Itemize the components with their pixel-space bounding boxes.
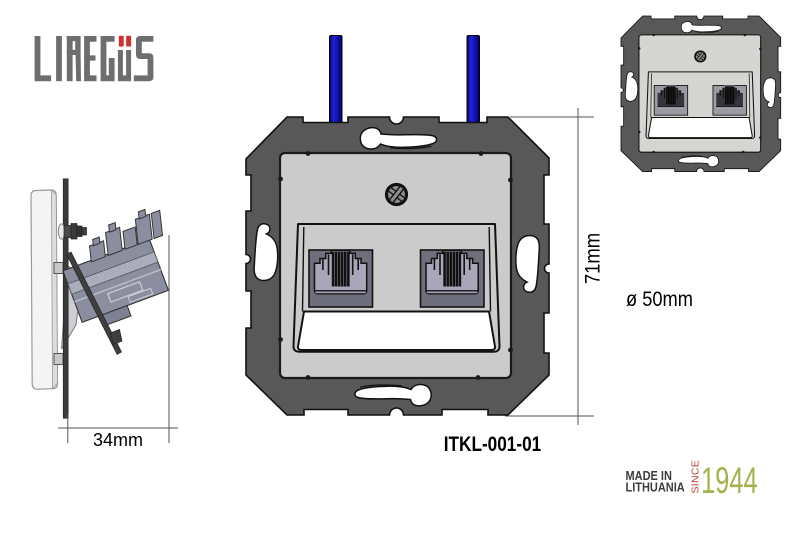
svg-text:LITHUANIA: LITHUANIA <box>626 481 686 495</box>
svg-text:ø 50mm: ø 50mm <box>626 288 693 311</box>
svg-text:ITKL-001-01: ITKL-001-01 <box>444 432 542 456</box>
svg-text:34mm: 34mm <box>93 430 143 450</box>
svg-text:SINCE: SINCE <box>690 460 702 494</box>
svg-text:1944: 1944 <box>701 459 758 501</box>
svg-text:71mm: 71mm <box>581 233 604 284</box>
